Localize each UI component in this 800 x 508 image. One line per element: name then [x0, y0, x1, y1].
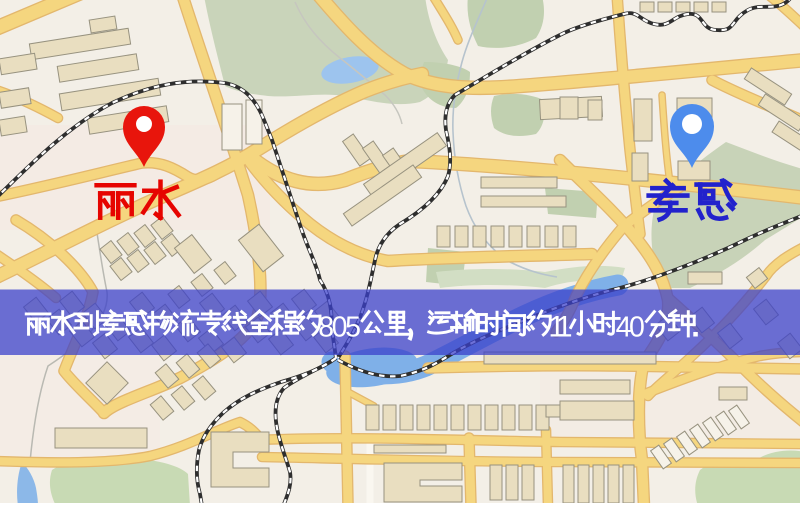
svg-text:805: 805	[318, 312, 360, 344]
svg-text:40: 40	[616, 312, 644, 344]
